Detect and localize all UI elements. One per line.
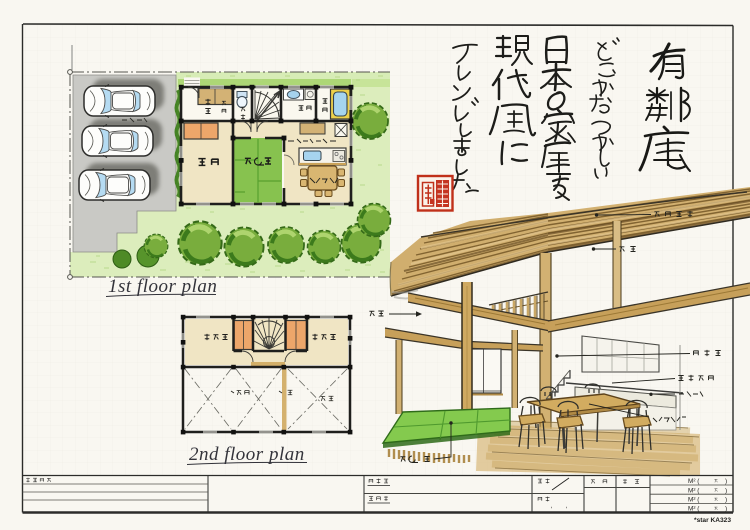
- svg-text:M² (: M² (: [688, 478, 700, 485]
- svg-text:): ): [725, 506, 727, 513]
- svg-text:M² (: M² (: [688, 487, 700, 494]
- svg-text:): ): [725, 497, 727, 504]
- svg-text:): ): [725, 478, 727, 485]
- svg-text:M² (: M² (: [688, 506, 700, 513]
- svg-text:): ): [725, 487, 727, 494]
- svg-text:*star KA323: *star KA323: [694, 517, 731, 524]
- svg-text:M² (: M² (: [688, 497, 700, 504]
